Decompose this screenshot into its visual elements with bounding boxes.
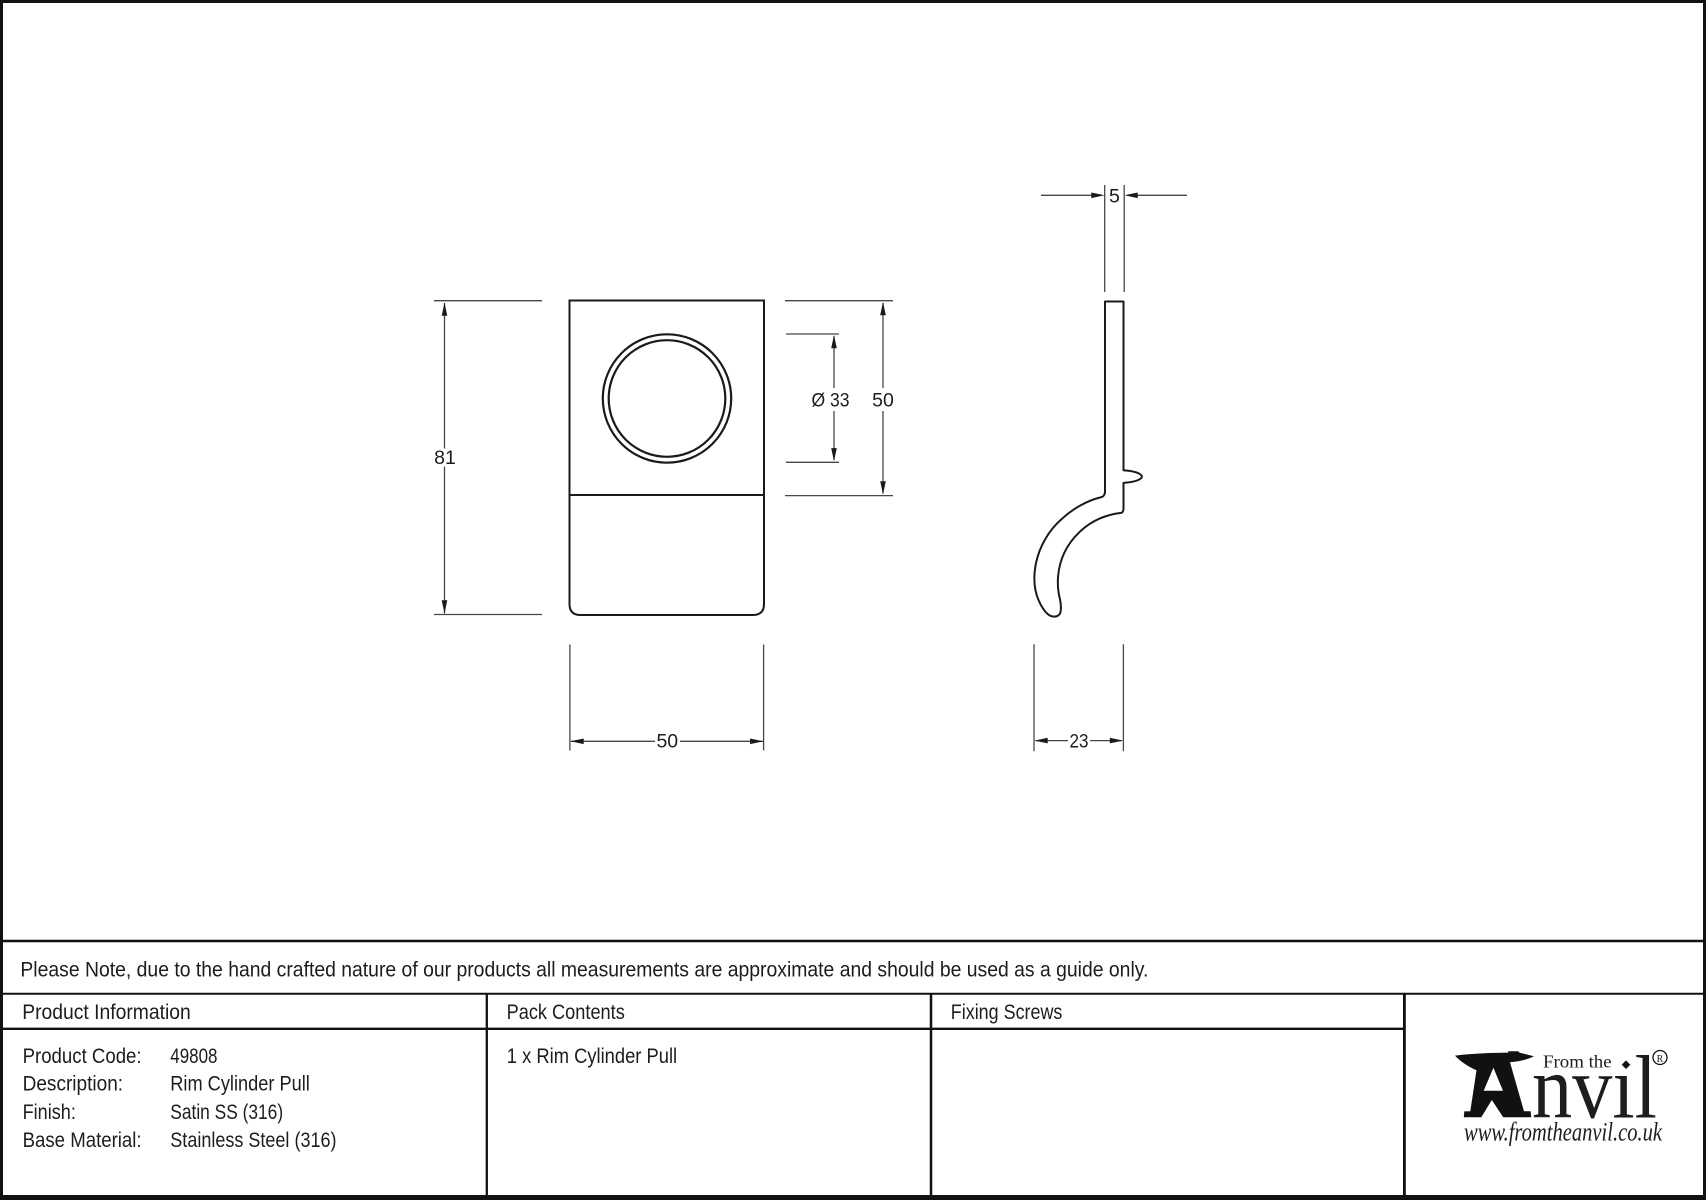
svg-text:Product Information: Product Information <box>22 1000 191 1024</box>
svg-text:Description:: Description: <box>23 1072 124 1096</box>
svg-text:5: 5 <box>1109 185 1120 207</box>
svg-text:49808: 49808 <box>170 1044 217 1068</box>
svg-text:Rim Cylinder Pull: Rim Cylinder Pull <box>170 1072 309 1096</box>
svg-text:1 x Rim Cylinder Pull: 1 x Rim Cylinder Pull <box>507 1044 677 1068</box>
svg-text:Fixing Screws: Fixing Screws <box>951 1000 1063 1024</box>
svg-text:81: 81 <box>434 447 456 469</box>
svg-text:Base Material:: Base Material: <box>23 1128 142 1152</box>
svg-text:50: 50 <box>656 730 678 752</box>
svg-text:Stainless Steel (316): Stainless Steel (316) <box>170 1128 336 1152</box>
svg-text:R: R <box>1657 1054 1664 1065</box>
svg-text:Finish:: Finish: <box>23 1100 76 1124</box>
svg-text:23: 23 <box>1070 730 1089 752</box>
svg-text:Please Note, due to the hand c: Please Note, due to the hand crafted nat… <box>20 958 1148 982</box>
svg-text:Ø 33: Ø 33 <box>812 390 850 412</box>
svg-text:Satin SS (316): Satin SS (316) <box>170 1100 283 1124</box>
svg-text:Product Code:: Product Code: <box>23 1044 142 1068</box>
svg-text:Pack Contents: Pack Contents <box>507 1000 625 1024</box>
svg-text:50: 50 <box>872 390 894 412</box>
svg-text:www.fromtheanvil.co.uk: www.fromtheanvil.co.uk <box>1464 1118 1662 1147</box>
